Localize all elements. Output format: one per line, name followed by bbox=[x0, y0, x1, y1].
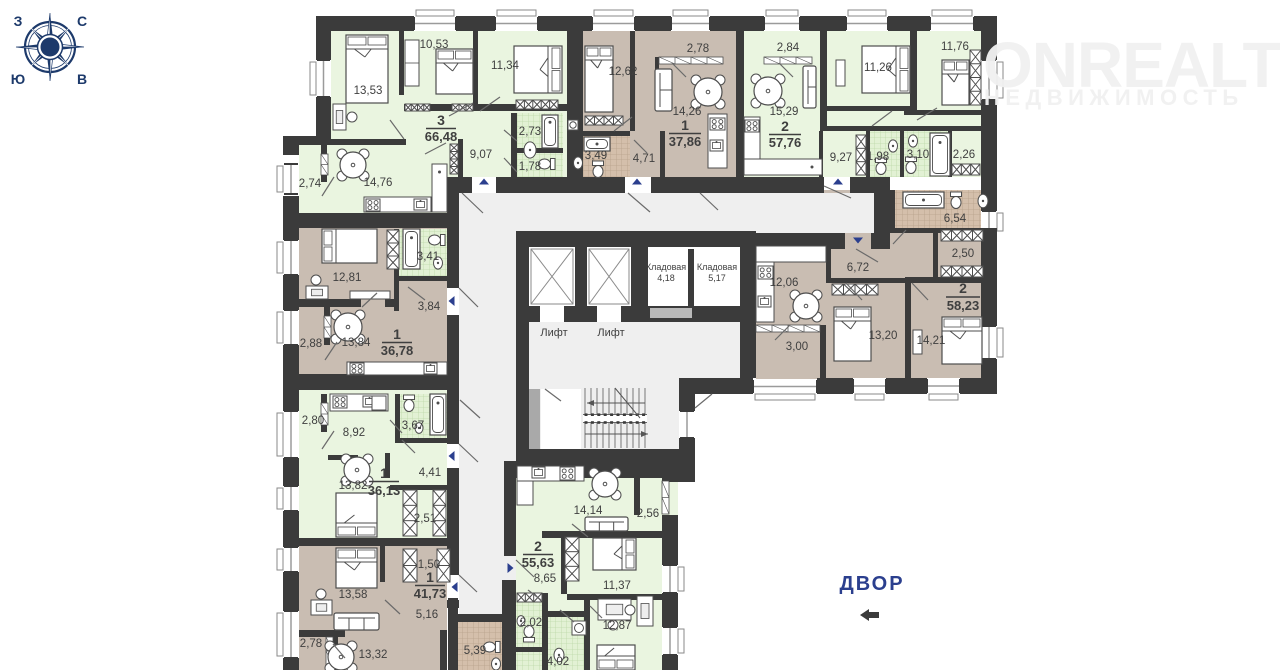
svg-text:5,17: 5,17 bbox=[708, 273, 726, 283]
svg-text:11,34: 11,34 bbox=[491, 60, 520, 72]
svg-text:Лифт: Лифт bbox=[540, 327, 567, 339]
svg-text:З: З bbox=[14, 13, 23, 29]
svg-text:66,48: 66,48 bbox=[425, 129, 458, 144]
svg-text:12,87: 12,87 bbox=[603, 620, 632, 632]
svg-text:3: 3 bbox=[437, 112, 445, 128]
svg-text:12,62: 12,62 bbox=[609, 66, 638, 78]
svg-text:2,78: 2,78 bbox=[300, 638, 322, 650]
svg-text:3,49: 3,49 bbox=[585, 150, 607, 162]
svg-text:15,29: 15,29 bbox=[770, 106, 799, 118]
svg-text:36,78: 36,78 bbox=[381, 343, 414, 358]
svg-text:11,26: 11,26 bbox=[864, 62, 892, 74]
svg-text:4,41: 4,41 bbox=[419, 467, 441, 479]
svg-text:57,76: 57,76 bbox=[769, 135, 802, 150]
svg-text:2,02: 2,02 bbox=[520, 617, 542, 629]
svg-text:1: 1 bbox=[393, 326, 401, 342]
svg-text:3,67: 3,67 bbox=[402, 420, 424, 432]
svg-text:2,50: 2,50 bbox=[952, 248, 974, 260]
svg-text:5,39: 5,39 bbox=[464, 645, 486, 657]
svg-text:11,37: 11,37 bbox=[603, 580, 631, 592]
svg-text:14,14: 14,14 bbox=[574, 505, 603, 517]
svg-text:3,00: 3,00 bbox=[786, 341, 808, 353]
svg-text:14,21: 14,21 bbox=[917, 335, 946, 347]
svg-text:3,84: 3,84 bbox=[418, 301, 441, 313]
svg-text:Кладовая: Кладовая bbox=[697, 262, 737, 272]
svg-text:6,72: 6,72 bbox=[847, 262, 869, 274]
svg-text:3,10: 3,10 bbox=[907, 149, 929, 161]
svg-text:8,65: 8,65 bbox=[534, 573, 556, 585]
svg-text:Ю: Ю bbox=[11, 71, 25, 87]
svg-text:11,76: 11,76 bbox=[941, 41, 969, 53]
svg-text:13,20: 13,20 bbox=[869, 330, 898, 342]
svg-text:1,98: 1,98 bbox=[867, 151, 889, 163]
svg-text:37,86: 37,86 bbox=[669, 134, 702, 149]
svg-text:4,71: 4,71 bbox=[633, 153, 655, 165]
svg-text:58,23: 58,23 bbox=[947, 298, 980, 313]
svg-text:ДВОР: ДВОР bbox=[839, 573, 904, 595]
svg-text:8,92: 8,92 bbox=[343, 427, 365, 439]
svg-text:Лифт: Лифт bbox=[597, 327, 624, 339]
svg-text:9,07: 9,07 bbox=[470, 149, 492, 161]
svg-text:2: 2 bbox=[534, 538, 542, 554]
svg-text:4,18: 4,18 bbox=[657, 273, 675, 283]
svg-text:1: 1 bbox=[380, 465, 388, 481]
svg-text:12,06: 12,06 bbox=[770, 277, 799, 289]
svg-text:2,78: 2,78 bbox=[687, 43, 709, 55]
svg-text:2,56: 2,56 bbox=[637, 508, 659, 520]
svg-text:2: 2 bbox=[959, 280, 967, 296]
svg-text:НЕДВИЖИМОСТЬ: НЕДВИЖИМОСТЬ bbox=[984, 85, 1244, 110]
svg-text:9,27: 9,27 bbox=[830, 152, 852, 164]
svg-text:2,73: 2,73 bbox=[519, 126, 541, 138]
svg-text:1,78: 1,78 bbox=[519, 161, 541, 173]
svg-text:1: 1 bbox=[426, 569, 434, 585]
svg-text:5,16: 5,16 bbox=[416, 609, 438, 621]
svg-text:2,84: 2,84 bbox=[777, 42, 800, 54]
svg-text:2,74: 2,74 bbox=[299, 178, 322, 190]
svg-text:С: С bbox=[77, 13, 87, 29]
svg-text:Кладовая: Кладовая bbox=[646, 262, 686, 272]
svg-text:2,51: 2,51 bbox=[414, 513, 436, 525]
svg-text:3,41: 3,41 bbox=[417, 251, 439, 263]
svg-text:4,02: 4,02 bbox=[547, 656, 569, 668]
svg-text:1: 1 bbox=[681, 117, 689, 133]
svg-text:14,76: 14,76 bbox=[364, 177, 393, 189]
svg-text:2,88: 2,88 bbox=[300, 338, 322, 350]
svg-text:2,80: 2,80 bbox=[302, 415, 324, 427]
svg-text:41,73: 41,73 bbox=[414, 586, 447, 601]
svg-text:12,81: 12,81 bbox=[333, 272, 362, 284]
svg-text:36,13: 36,13 bbox=[368, 483, 401, 498]
svg-text:6,54: 6,54 bbox=[944, 213, 967, 225]
svg-text:10,53: 10,53 bbox=[420, 39, 449, 51]
svg-text:2,26: 2,26 bbox=[953, 149, 975, 161]
svg-text:13,53: 13,53 bbox=[354, 85, 383, 97]
svg-text:13,32: 13,32 bbox=[359, 649, 388, 661]
svg-text:13,82: 13,82 bbox=[339, 480, 368, 492]
svg-text:55,63: 55,63 bbox=[522, 555, 555, 570]
svg-text:13,84: 13,84 bbox=[342, 337, 371, 349]
svg-text:13,58: 13,58 bbox=[339, 589, 368, 601]
svg-text:2: 2 bbox=[781, 118, 789, 134]
svg-text:В: В bbox=[77, 71, 87, 87]
